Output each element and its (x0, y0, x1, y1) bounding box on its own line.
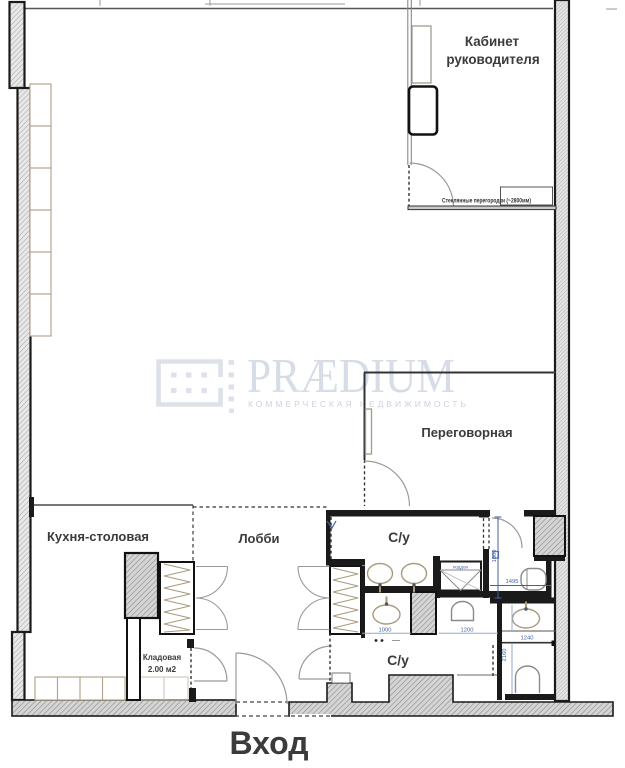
svg-text:Вход: Вход (229, 725, 308, 761)
svg-text:2160: 2160 (502, 649, 508, 662)
svg-text:С/у: С/у (387, 652, 409, 668)
svg-text:1200: 1200 (461, 628, 474, 634)
svg-text:руководителя: руководителя (446, 52, 539, 67)
svg-text:2.00 м2: 2.00 м2 (148, 665, 177, 674)
svg-text:Кухня-столовая: Кухня-столовая (47, 529, 149, 544)
svg-text:1000: 1000 (379, 628, 392, 634)
svg-text:1240: 1240 (521, 636, 534, 642)
svg-text:Стеклянные перегородки (~2800м: Стеклянные перегородки (~2800мм) (442, 199, 531, 205)
svg-text:С/у: С/у (388, 529, 410, 545)
svg-text:Переговорная: Переговорная (421, 425, 512, 440)
svg-text:Лобби: Лобби (238, 531, 279, 546)
svg-text:1495: 1495 (506, 579, 519, 585)
svg-text:1800: 1800 (492, 550, 498, 563)
svg-text:поддон: поддон (453, 565, 469, 570)
svg-text:Кабинет: Кабинет (465, 34, 520, 49)
svg-text:Кладовая: Кладовая (143, 653, 182, 662)
svg-text:PRÆDIUM: PRÆDIUM (247, 348, 455, 403)
